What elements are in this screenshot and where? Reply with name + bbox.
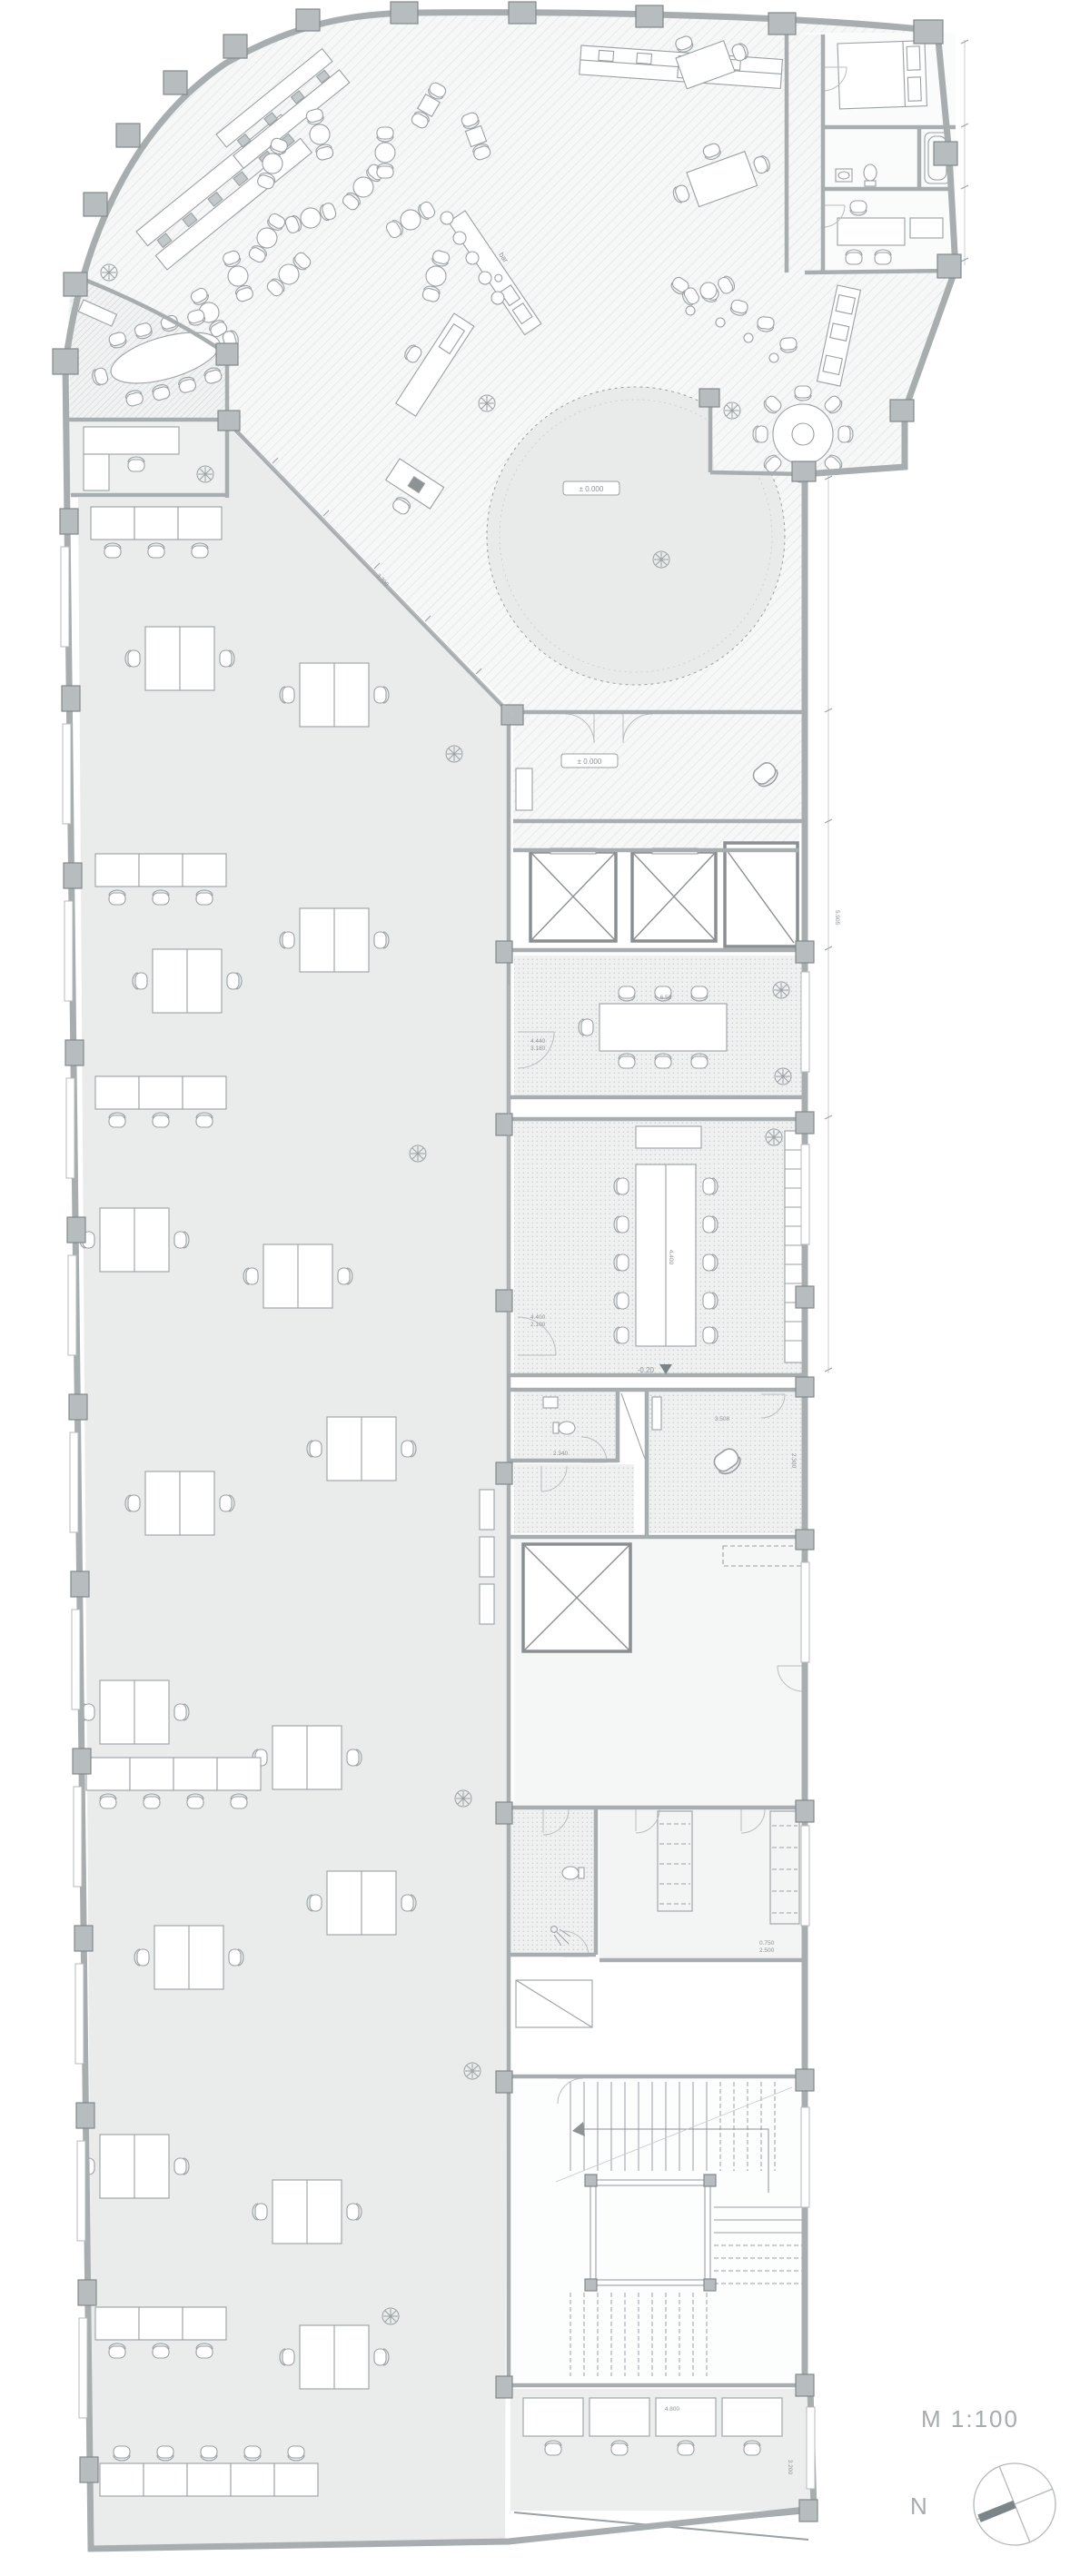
dim-closet-h: 2.500 (759, 1947, 775, 1954)
vestibule-elevation-label: ± 0.000 (578, 758, 602, 766)
coat-bench (516, 768, 532, 810)
scale-label: M 1:100 (921, 2405, 1019, 2432)
dim-office-width: 4.800 (665, 2406, 680, 2413)
plant-icon (479, 395, 495, 411)
plant-icon (773, 982, 789, 998)
dim-office-height: 3.200 (787, 2460, 793, 2475)
plant-icon (455, 1790, 471, 1807)
plant-icon (410, 1145, 426, 1162)
dim-meeting-table: 6.50 (660, 995, 672, 1001)
lav-floor (514, 1464, 634, 1533)
bar-stool (491, 292, 504, 304)
dim-conference-door-w: 4.400 (530, 1314, 546, 1321)
radiator (785, 1131, 803, 1362)
bar-stool (479, 272, 491, 284)
bed (837, 41, 926, 109)
dim-meeting-door-h: 3.180 (530, 1045, 546, 1052)
lobby-elevation-label: ± 0.000 (580, 485, 604, 493)
dim-conference-table: 4.400 (668, 1250, 674, 1265)
conference-level-label: -0.20 (638, 1366, 655, 1374)
suite-hall-floor (787, 35, 823, 271)
dim-hall: 5.905 (834, 910, 840, 926)
fold-bed (516, 1980, 592, 2027)
dim-meeting-door-w: 4.440 (530, 1038, 546, 1045)
bar-stool (453, 232, 466, 244)
toilet-icon (864, 164, 877, 186)
dim-guest-width: 3.508 (715, 1416, 730, 1422)
plant-icon (724, 402, 740, 419)
dim-conference-door-h: 2.100 (530, 1322, 546, 1328)
bar-stool (466, 252, 479, 264)
plant-icon (382, 2308, 399, 2324)
plant-icon (101, 264, 117, 281)
dim-wc: 2.340 (553, 1451, 569, 1457)
cabinet (480, 1537, 494, 1577)
cabinet (480, 1584, 494, 1624)
plant-icon (446, 746, 462, 762)
floor-plan-page: ± 0.000 ± 0.000 -0.20 bar 6.50 4.440 3.1… (0, 0, 1090, 2576)
title-block: M 1:100 N (910, 2405, 1068, 2558)
plant-icon (766, 1129, 782, 1145)
lower-hall-floor (599, 1809, 805, 1960)
toilet-icon (562, 1867, 584, 1879)
shaft-room (725, 843, 798, 946)
elevator-core (530, 843, 798, 946)
sink-icon (543, 1397, 558, 1408)
plant-icon (775, 1068, 791, 1085)
cabinet (480, 1490, 494, 1530)
plant-icon (197, 466, 213, 482)
dim-closet-w: 0.750 (759, 1940, 775, 1947)
dim-guest-height: 2.300 (790, 1453, 797, 1469)
floor-plan-drawing: ± 0.000 ± 0.000 -0.20 bar 6.50 4.440 3.1… (0, 0, 1090, 2576)
bar-stool (441, 212, 453, 224)
north-label: N (910, 2492, 929, 2520)
toilet-icon (553, 1422, 575, 1434)
duct-diagonal (621, 1393, 645, 1459)
stairwell-floor (510, 2078, 807, 2382)
shelf (652, 1397, 661, 1430)
north-compass-icon (961, 2451, 1067, 2557)
plant-icon (653, 551, 669, 568)
credenza (636, 1126, 701, 1148)
plant-icon (464, 2063, 481, 2079)
